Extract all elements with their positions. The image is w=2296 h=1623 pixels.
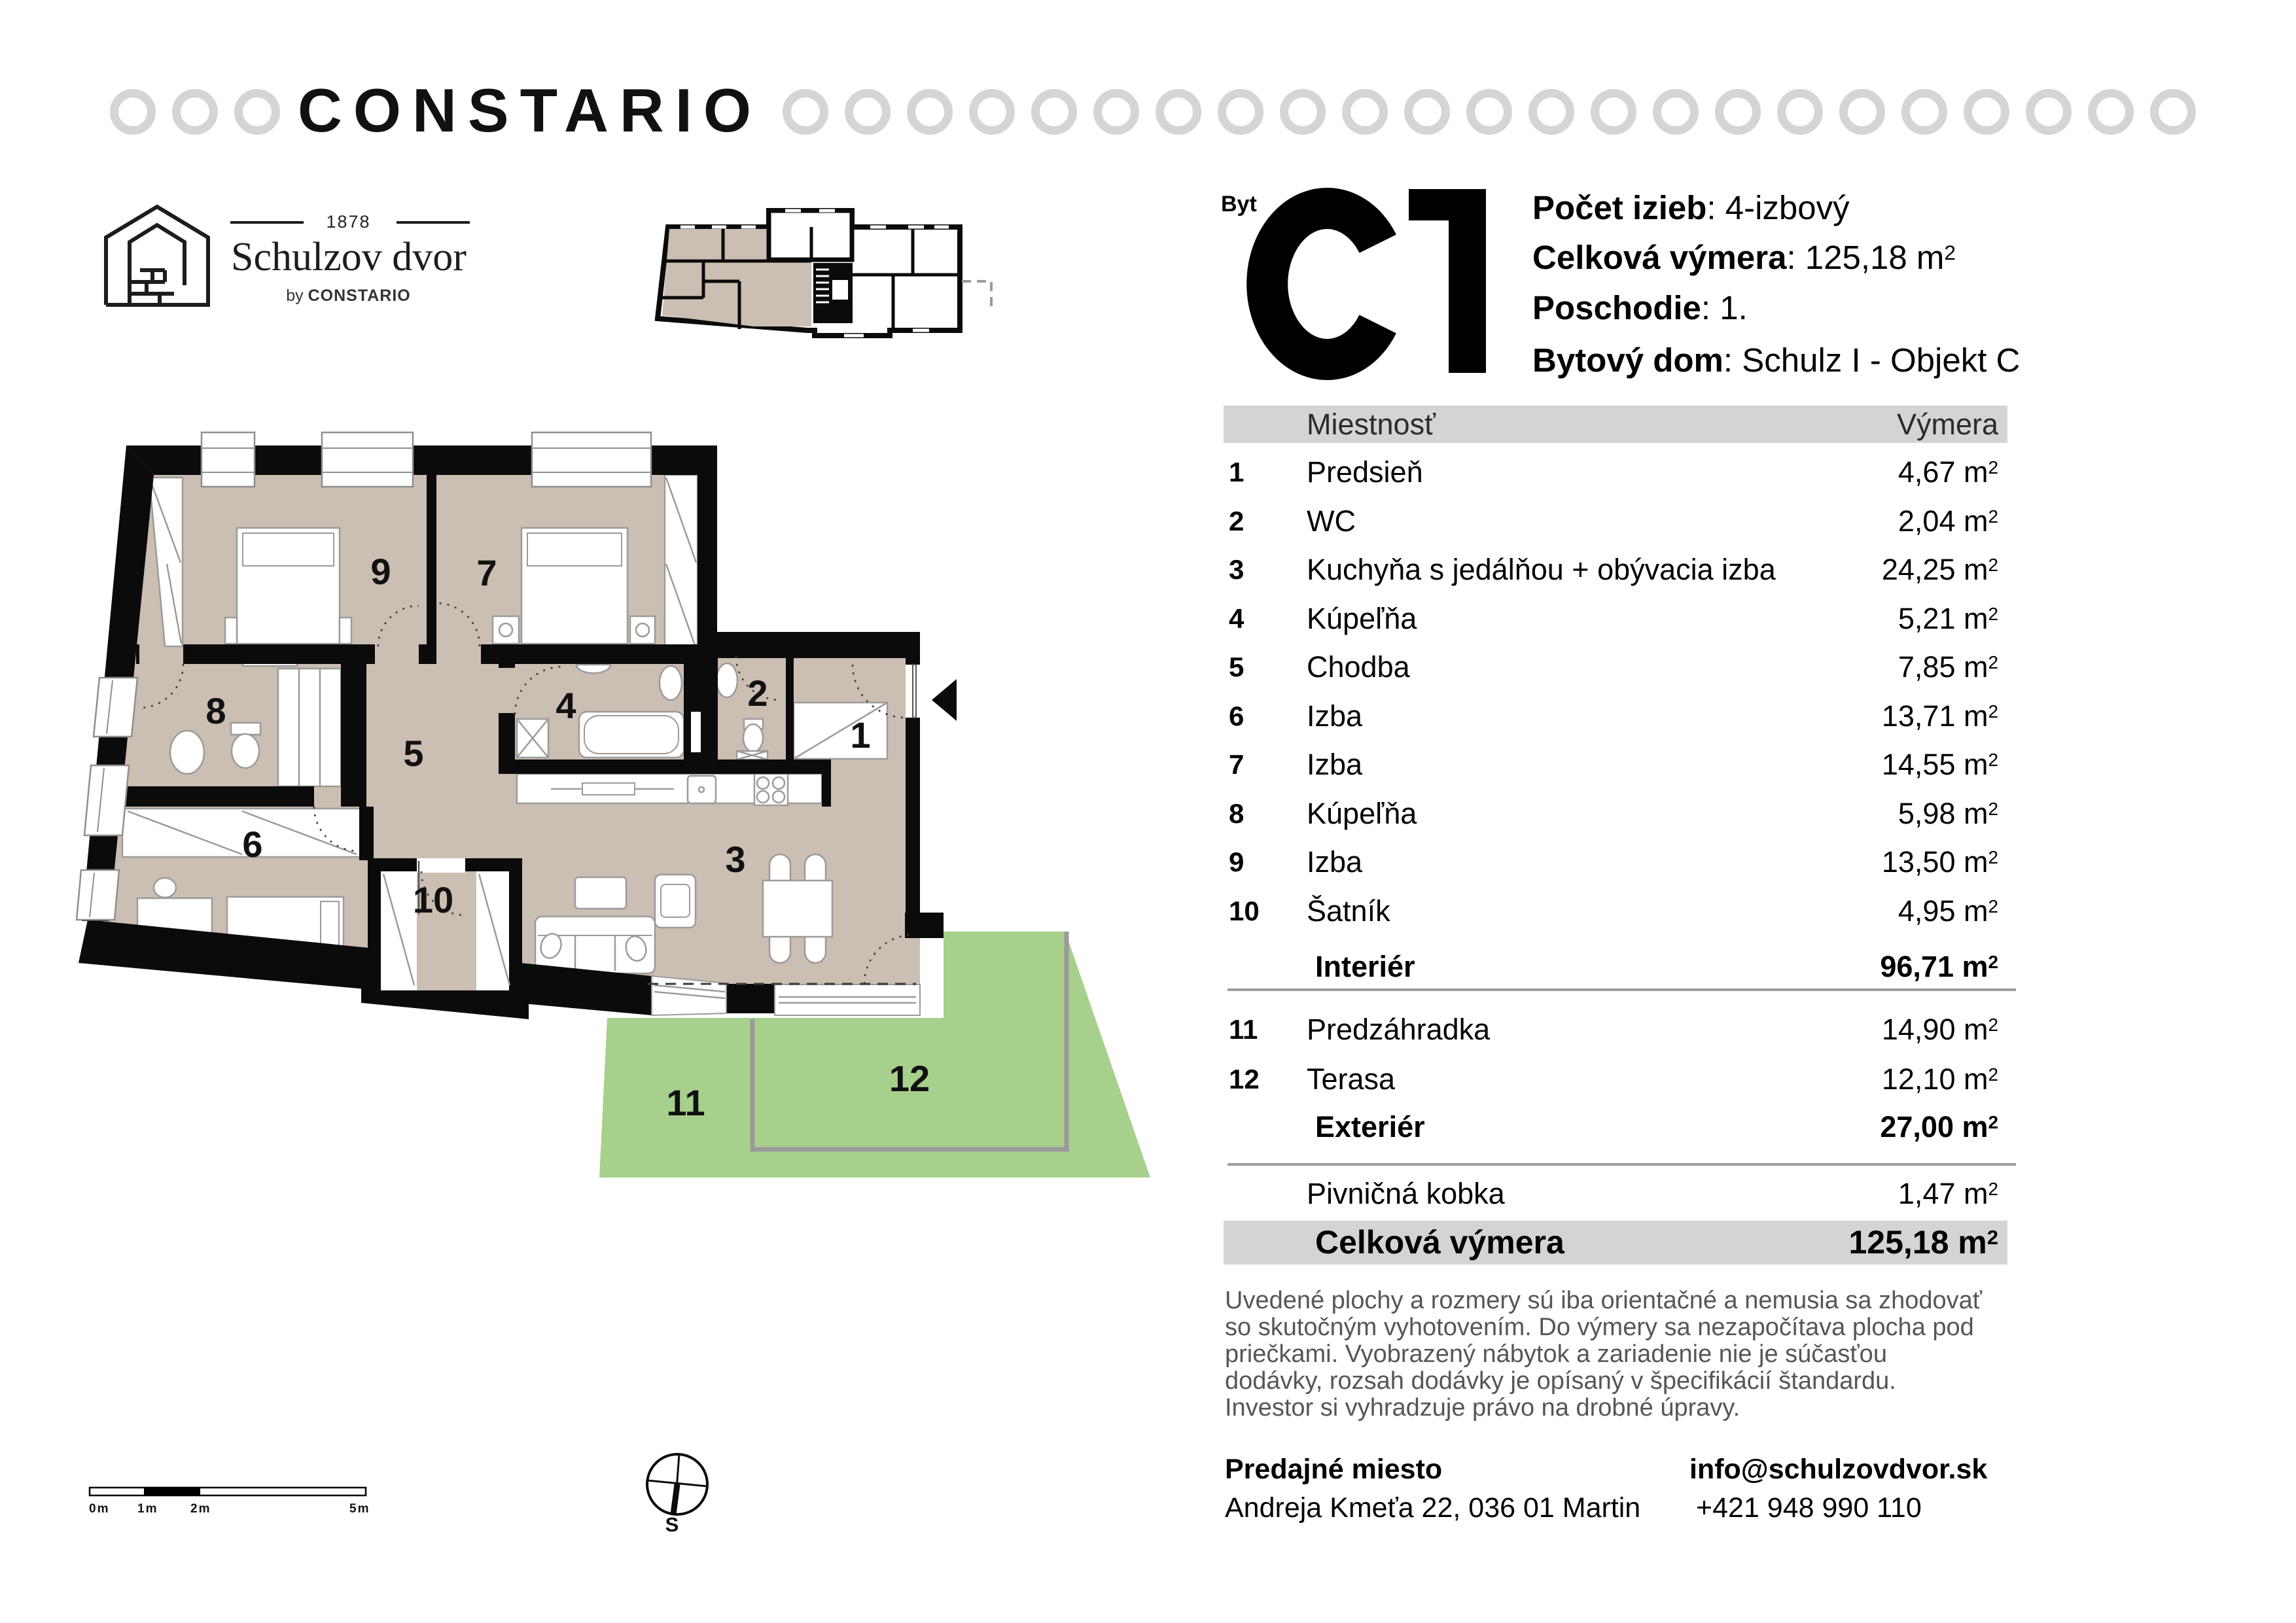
svg-text:12: 12: [889, 1058, 930, 1099]
svg-text:4: 4: [556, 685, 576, 726]
svg-text:8: 8: [205, 690, 226, 731]
svg-text:1m: 1m: [137, 1502, 158, 1516]
svg-text:1: 1: [850, 714, 870, 756]
svg-text:3: 3: [725, 839, 745, 880]
svg-text:5m: 5m: [349, 1502, 370, 1516]
svg-text:2m: 2m: [190, 1502, 211, 1516]
svg-text:7: 7: [476, 552, 497, 593]
svg-text:0m: 0m: [89, 1502, 109, 1516]
svg-text:5: 5: [403, 733, 423, 774]
svg-text:11: 11: [666, 1082, 705, 1123]
svg-text:S: S: [665, 1513, 679, 1536]
svg-text:6: 6: [242, 824, 262, 865]
svg-text:10: 10: [413, 879, 453, 920]
svg-text:2: 2: [747, 672, 768, 714]
svg-text:9: 9: [370, 551, 391, 592]
